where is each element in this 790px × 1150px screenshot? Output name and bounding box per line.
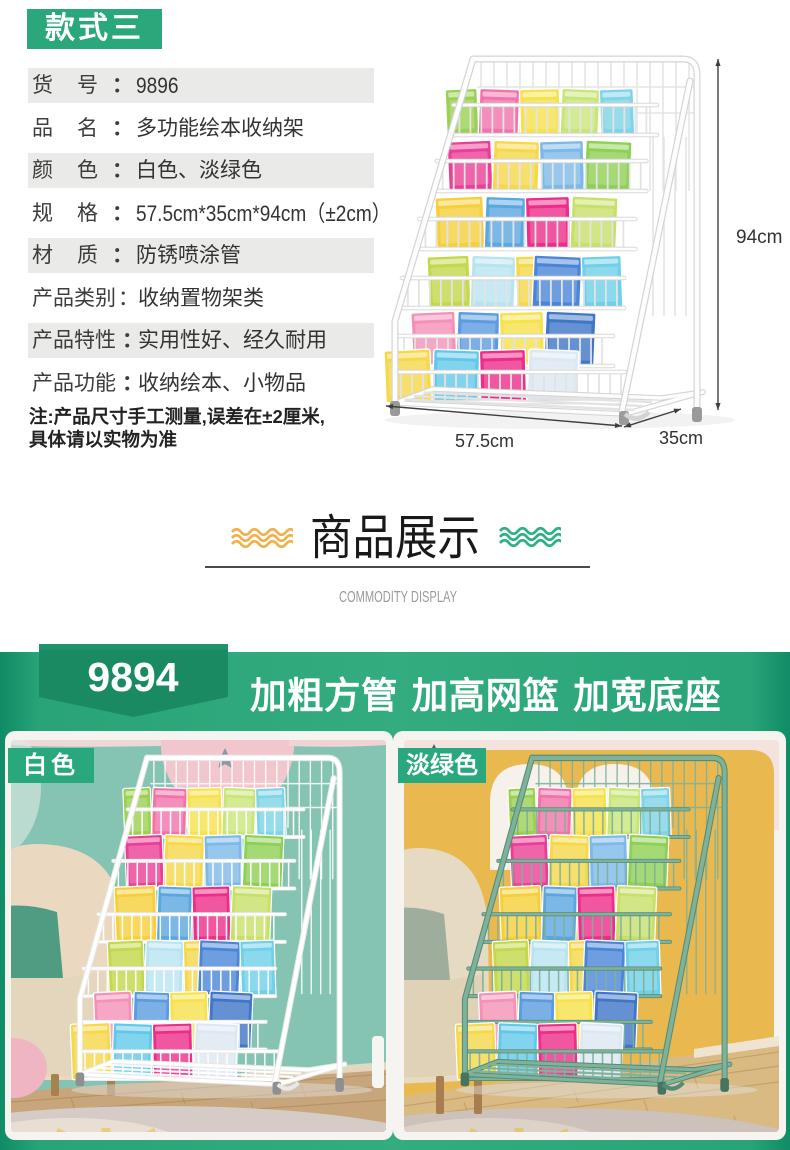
svg-text:COMMODITY DISPLAY: COMMODITY DISPLAY <box>339 589 457 606</box>
svg-text:9894: 9894 <box>87 654 178 700</box>
svg-text:94cm: 94cm <box>736 227 782 248</box>
svg-text:57.5cm: 57.5cm <box>455 431 514 451</box>
svg-text:商品展示: 商品展示 <box>310 512 480 564</box>
svg-text:35cm: 35cm <box>659 428 703 448</box>
